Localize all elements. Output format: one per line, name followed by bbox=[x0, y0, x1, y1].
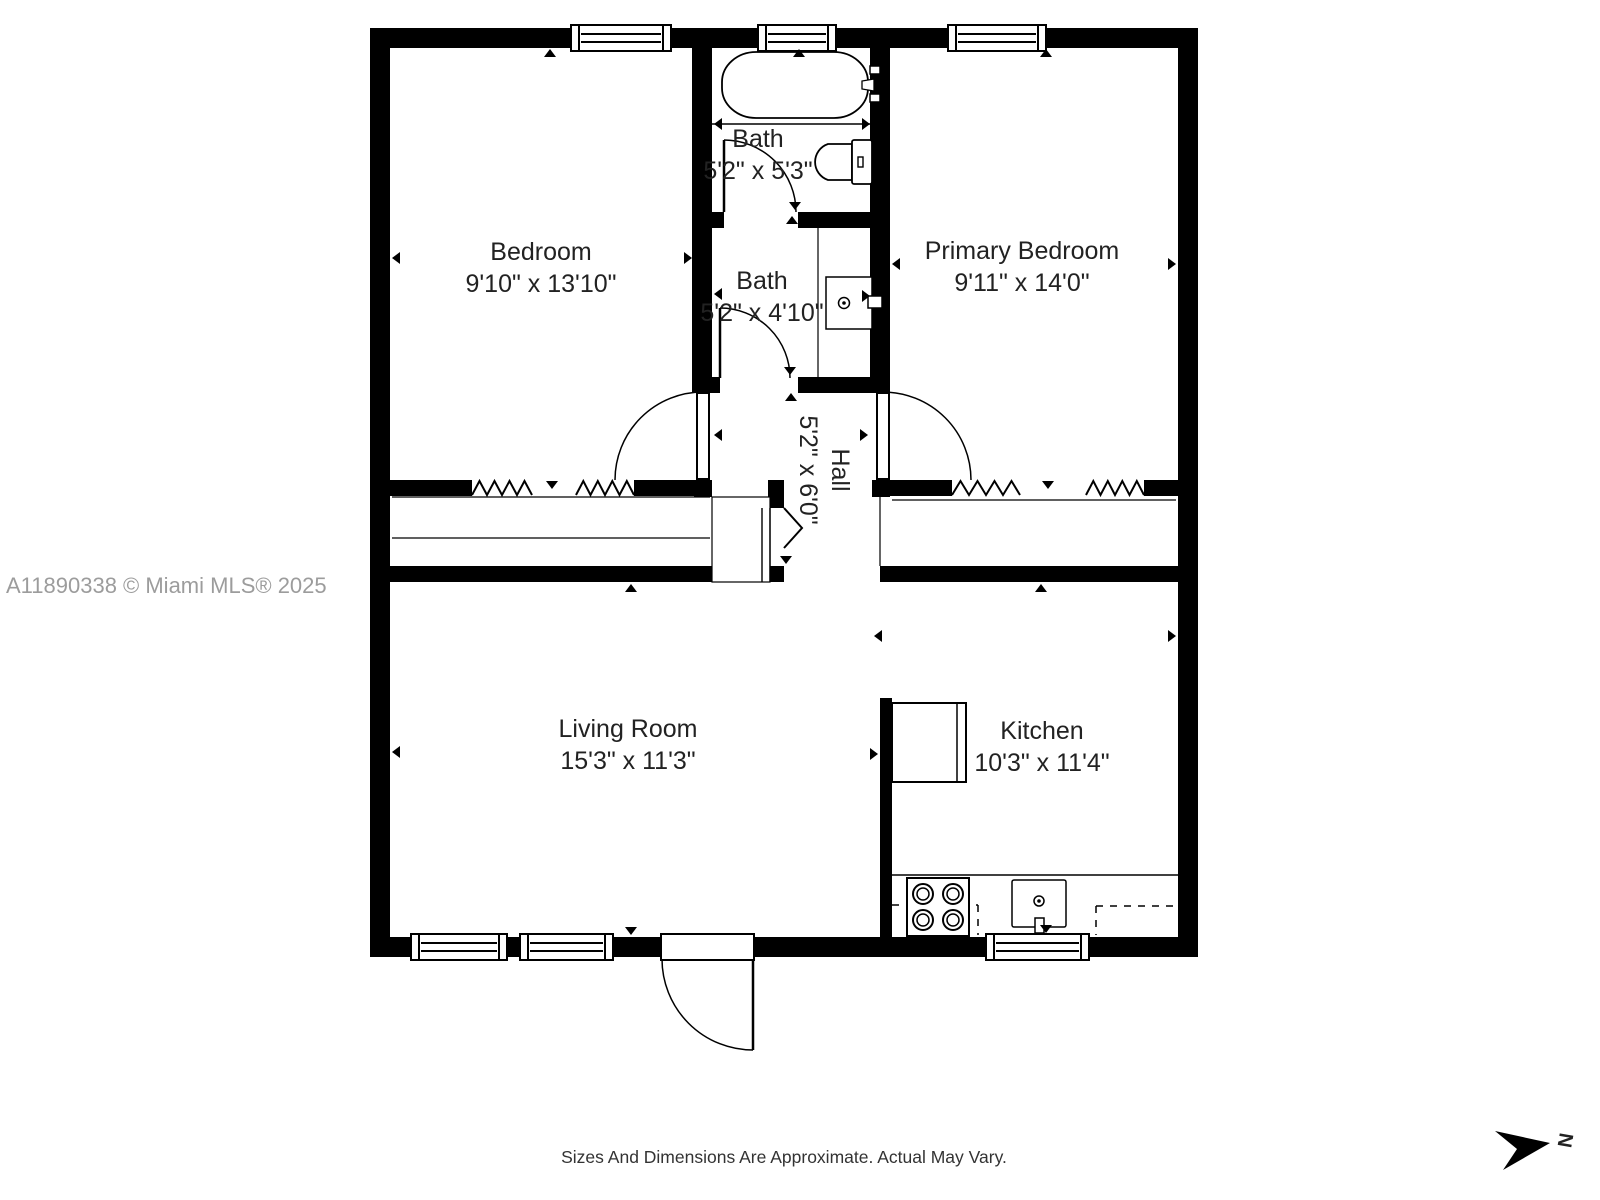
window-kitchen bbox=[985, 933, 1090, 961]
dimension-marker bbox=[1168, 630, 1176, 642]
primary-door-arc bbox=[883, 392, 971, 480]
wall-left bbox=[370, 28, 390, 957]
dimension-marker bbox=[392, 252, 400, 264]
closet-left-shelves bbox=[392, 497, 710, 538]
wall-closet-left-a bbox=[390, 480, 472, 496]
bedroom-door-leaf bbox=[696, 392, 710, 480]
window-glass bbox=[530, 942, 603, 952]
kitchen-counter bbox=[892, 875, 1178, 935]
dimension-marker bbox=[780, 556, 792, 564]
closet-right-shelves bbox=[880, 497, 1176, 566]
window-glass bbox=[581, 33, 661, 43]
window-bedroom bbox=[570, 24, 672, 52]
hall-dims: 5'2" x 6'0" bbox=[792, 415, 824, 524]
dimension-marker bbox=[544, 49, 556, 57]
window-living-2 bbox=[519, 933, 614, 961]
wall-closet-right-a bbox=[890, 480, 952, 496]
entry-door-arc bbox=[662, 959, 753, 1050]
window-living-1 bbox=[410, 933, 508, 961]
bathtub-icon bbox=[712, 52, 880, 124]
dimension-marker bbox=[785, 393, 797, 401]
dimension-marker bbox=[1035, 584, 1047, 592]
wall-kitchen-divider bbox=[880, 698, 892, 937]
dimension-marker bbox=[874, 630, 882, 642]
wall-bath2-hall-b bbox=[798, 377, 890, 393]
dimension-marker bbox=[786, 216, 798, 224]
dimension-marker bbox=[793, 49, 805, 57]
dimension-marker bbox=[870, 748, 878, 760]
disclaimer-text: Sizes And Dimensions Are Approximate. Ac… bbox=[370, 1147, 1198, 1168]
bedroom-name: Bedroom bbox=[465, 236, 616, 268]
bath-top-dims: 5'2" x 5'3" bbox=[703, 155, 812, 187]
dimension-marker bbox=[862, 290, 870, 302]
toilet-icon bbox=[815, 140, 872, 184]
dimension-marker bbox=[784, 367, 796, 375]
dimension-marker bbox=[862, 118, 870, 130]
window-glass bbox=[958, 33, 1036, 43]
dimension-marker bbox=[1040, 49, 1052, 57]
wall-corner-right bbox=[872, 480, 890, 497]
wall-closet-right-b bbox=[1144, 480, 1178, 496]
room-label-bath-mid: Bath 5'2" x 4'10" bbox=[700, 265, 823, 329]
entry-door-threshold bbox=[660, 933, 755, 961]
dimension-marker bbox=[1168, 258, 1176, 270]
dimension-marker bbox=[714, 429, 722, 441]
wall-closet-left-b bbox=[634, 480, 694, 496]
kitchen-dims: 10'3" x 11'4" bbox=[974, 747, 1109, 779]
bath-mid-name: Bath bbox=[700, 265, 823, 297]
wall-hall-closet-stub bbox=[768, 480, 784, 508]
wall-right bbox=[1178, 28, 1198, 957]
hall-name: Hall bbox=[824, 415, 856, 524]
dimension-marker bbox=[789, 202, 801, 210]
stove-icon bbox=[907, 878, 969, 936]
bath-mid-dims: 5'2" x 4'10" bbox=[700, 297, 823, 329]
primary-bedroom-name: Primary Bedroom bbox=[925, 235, 1120, 267]
room-label-living-room: Living Room 15'3" x 11'3" bbox=[559, 713, 698, 777]
wall-bath2-hall-a bbox=[692, 377, 720, 393]
room-label-bath-top: Bath 5'2" x 5'3" bbox=[703, 123, 812, 187]
living-room-name: Living Room bbox=[559, 713, 698, 745]
wall-bath1-bath2-b bbox=[798, 212, 890, 228]
north-arrow-icon: N bbox=[1495, 1131, 1577, 1170]
room-label-bedroom: Bedroom 9'10" x 13'10" bbox=[465, 236, 616, 300]
wall-bath1-bath2-a bbox=[692, 212, 724, 228]
wall-living-top bbox=[370, 566, 784, 582]
bedroom-door-arc bbox=[615, 392, 703, 480]
dimension-marker bbox=[1042, 481, 1054, 489]
primary-door-leaf bbox=[876, 392, 890, 480]
window-glass bbox=[996, 942, 1079, 952]
wall-corner-left bbox=[694, 480, 712, 497]
dimension-marker bbox=[1040, 925, 1052, 933]
dimension-marker bbox=[860, 429, 868, 441]
bath-top-name: Bath bbox=[703, 123, 812, 155]
dimension-marker bbox=[892, 258, 900, 270]
room-label-hall: Hall 5'2" x 6'0" bbox=[792, 415, 856, 524]
mls-watermark: A11890338 © Miami MLS® 2025 bbox=[6, 573, 327, 599]
bedroom-dims: 9'10" x 13'10" bbox=[465, 268, 616, 300]
refrigerator-icon bbox=[892, 703, 966, 782]
window-bath bbox=[757, 24, 837, 52]
floor-plan-image: N Bedroom 9'10" x 13'10" Bath 5'2" x 5'3… bbox=[0, 0, 1600, 1200]
primary-bedroom-dims: 9'11" x 14'0" bbox=[925, 267, 1120, 299]
window-glass bbox=[768, 33, 826, 43]
window-glass bbox=[421, 942, 497, 952]
kitchen-name: Kitchen bbox=[974, 715, 1109, 747]
window-primary bbox=[947, 24, 1047, 52]
wall-kitchen-top bbox=[880, 566, 1198, 582]
kitchen-sink-icon bbox=[1012, 880, 1066, 933]
dimension-marker bbox=[625, 927, 637, 935]
living-room-dims: 15'3" x 11'3" bbox=[559, 745, 698, 777]
room-label-primary-bedroom: Primary Bedroom 9'11" x 14'0" bbox=[925, 235, 1120, 299]
dimension-marker bbox=[625, 584, 637, 592]
dimension-marker bbox=[392, 746, 400, 758]
dimension-marker bbox=[684, 252, 692, 264]
room-label-kitchen: Kitchen 10'3" x 11'4" bbox=[974, 715, 1109, 779]
compass-label: N bbox=[1553, 1131, 1577, 1149]
dimension-marker bbox=[546, 481, 558, 489]
